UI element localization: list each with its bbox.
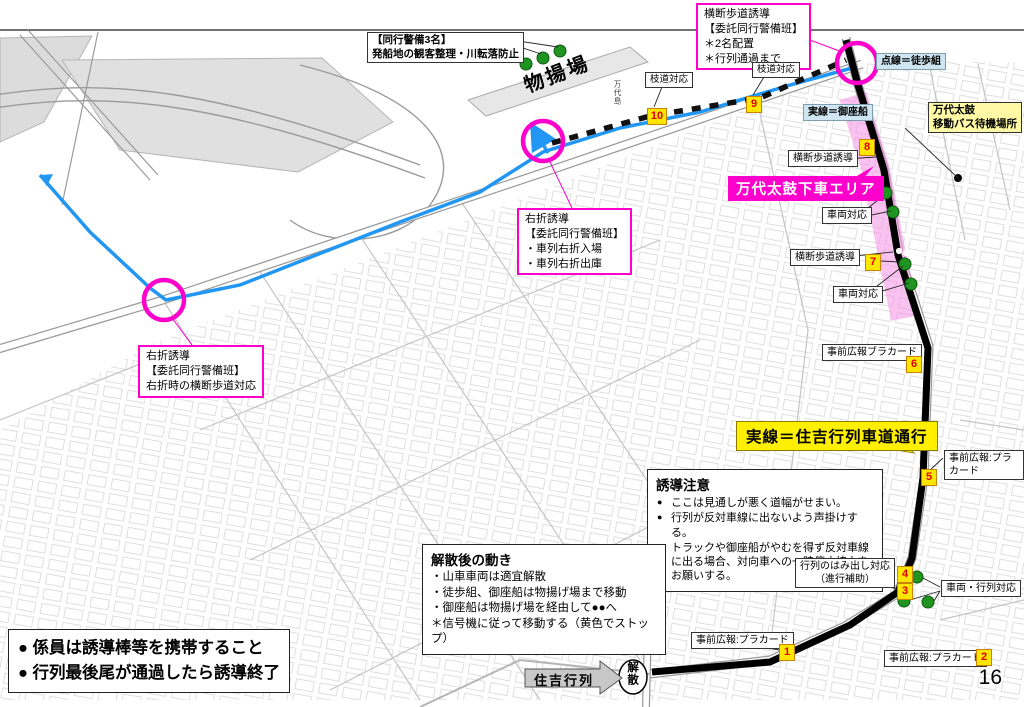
- caution-title: 誘導注意: [656, 474, 874, 494]
- page: { "header": { "title": "■人員・備品配置図 1日目；土曜…: [0, 0, 1024, 707]
- legend-dotted-walk: 点線＝徒歩組: [876, 53, 946, 70]
- callout-hamidashi: 行列のはみ出し対応 （進行補助）: [795, 558, 895, 588]
- badge-8: 8: [859, 139, 875, 156]
- sumiyoshi-arrow-label: 住吉行列: [534, 670, 594, 689]
- callout-edamichi-10: 枝道対応: [645, 72, 693, 88]
- after-dispersal-lines: ・山車車両は適宜解散 ・徒歩組、御座船は物揚げ場まで移動 ・御座船は物揚げ場を経…: [431, 570, 657, 648]
- after-dispersal-title: 解散後の動き: [431, 549, 657, 569]
- badge-1: 1: [779, 644, 795, 661]
- badge-9: 9: [746, 96, 762, 113]
- badge-6: 6: [906, 356, 922, 373]
- kaisan-label: 解散: [626, 661, 638, 686]
- badge-4: 4: [897, 566, 913, 583]
- badge-10: 10: [647, 108, 667, 125]
- banner-bandai-area: 万代太鼓下車エリア: [728, 176, 884, 201]
- callout-vehicle-1: 車両対応: [822, 207, 872, 224]
- callout-vehicle-parade: 車両・行列対応: [941, 580, 1021, 597]
- badge-5: 5: [921, 469, 937, 486]
- callout-crosswalk-guide-2: 横断歩道誘導: [790, 249, 860, 266]
- callout-crosswalk-guide-top: 横断歩道誘導 【委託同行警備班】 ＊2名配置 ＊行列通過まで: [696, 3, 811, 70]
- callout-right-turn-mid: 右折誘導 【委託同行警備班】 ・車列右折入場 ・車列右折出庫: [517, 208, 632, 275]
- badge-7: 7: [865, 254, 881, 271]
- callout-escort3: 【同行警備3名】 発船地の観客整理・川転落防止: [367, 32, 524, 63]
- page-number: 16: [979, 666, 1002, 690]
- badge-2: 2: [976, 649, 992, 666]
- caution-item: ここは見通しが悪く道幅がせまい。: [656, 496, 874, 510]
- legend-solid-parade: 実線＝住吉行列車道通行: [736, 421, 938, 451]
- callout-bandai-bus: 万代太鼓 移動バス待機場所: [928, 102, 1022, 133]
- badge-3: 3: [897, 583, 913, 600]
- callout-placard-2: 事前広報:プラカード: [884, 650, 987, 667]
- notes-box: ● 係員は誘導棒等を携帯すること ● 行列最後尾が通過したら誘導終了: [8, 629, 290, 693]
- after-dispersal-box: 解散後の動き ・山車車両は適宜解散 ・徒歩組、御座船は物揚げ場まで移動 ・御座船…: [422, 544, 666, 655]
- callout-placard-5: 事前広報:プラカード: [944, 450, 1024, 480]
- callout-right-turn-left: 右折誘導 【委託同行警備班】 右折時の横断歩道対応: [138, 345, 264, 398]
- callout-vehicle-2: 車両対応: [833, 286, 883, 303]
- street-bandaijima: 万代島: [612, 80, 623, 106]
- callout-crosswalk-guide-1: 横断歩道誘導: [788, 150, 858, 167]
- callout-edamichi-9: 枝道対応: [752, 62, 800, 78]
- legend-solid-boat: 実線＝御座船: [803, 104, 873, 121]
- caution-item: 行列が反対車線に出ないよう声掛けする。: [656, 511, 874, 540]
